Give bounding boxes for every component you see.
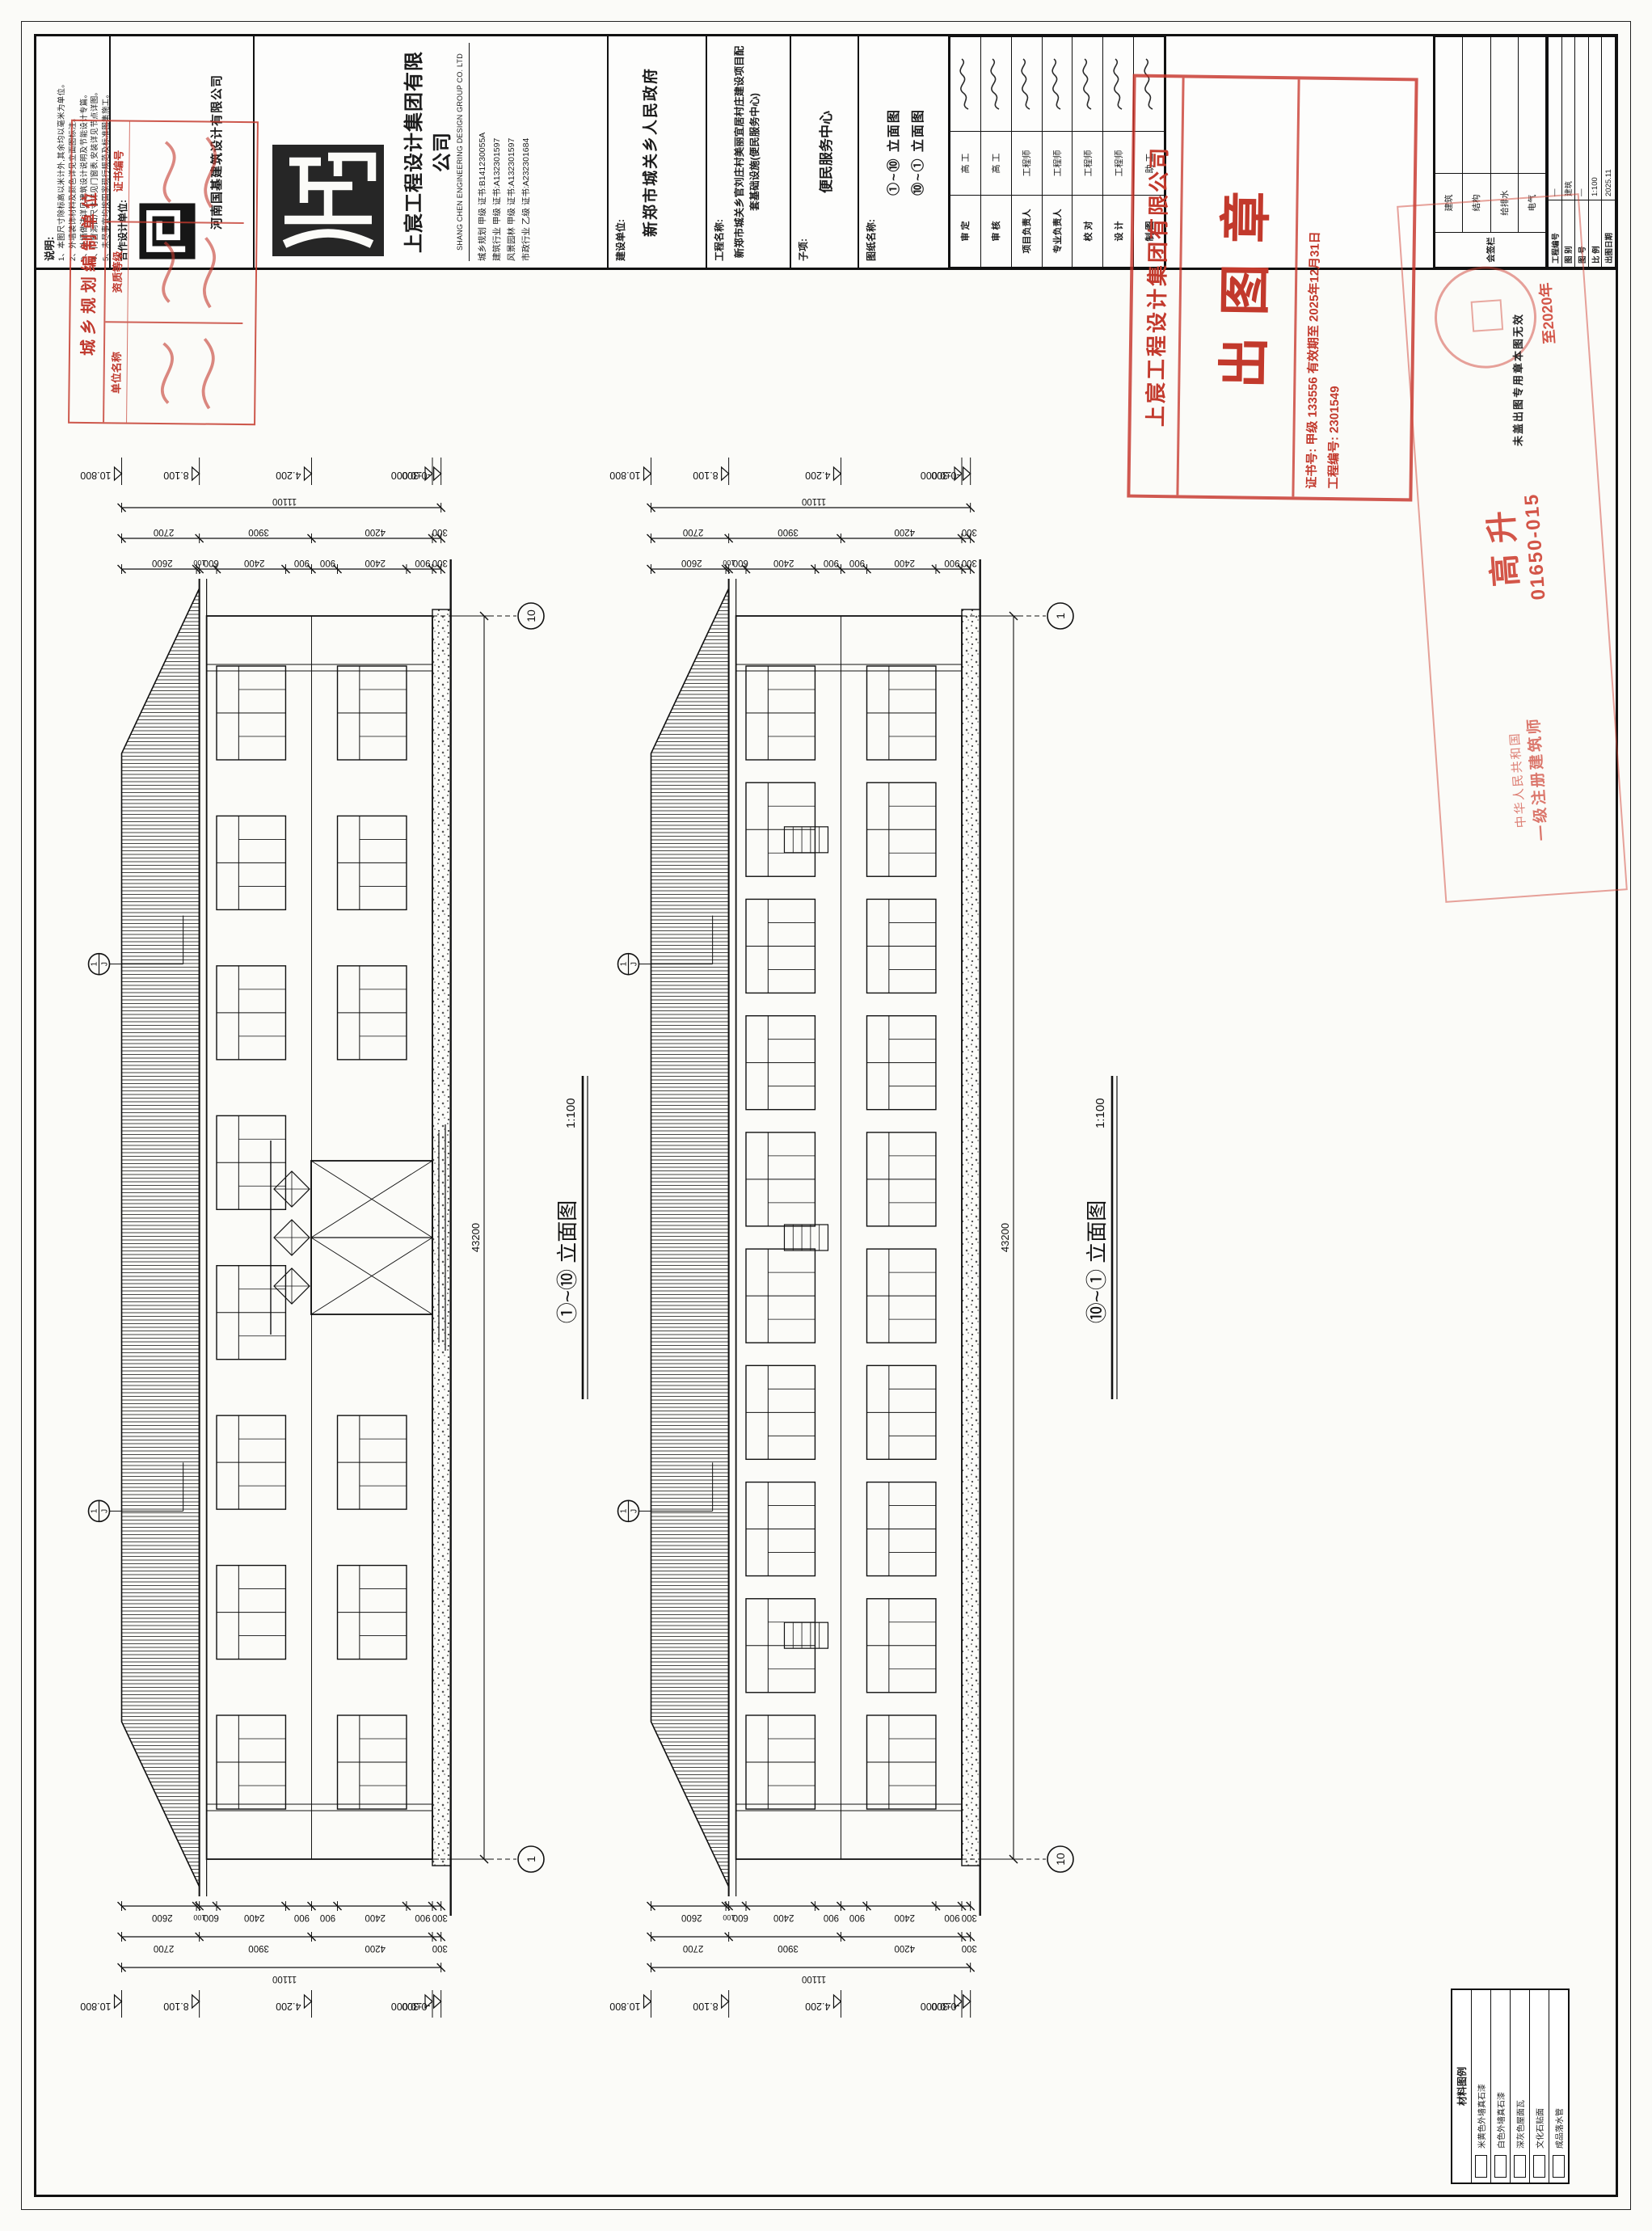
svg-text:300: 300 bbox=[432, 558, 448, 567]
legend-text: 米黄色外墙真石漆 bbox=[1475, 2084, 1487, 2149]
info-value: 建筑 bbox=[1561, 37, 1575, 200]
elevation-10: 2600100600240090090024009003002700390042… bbox=[609, 458, 1117, 2018]
release-stamp-company: 上宸工程设计集团有限公司 bbox=[1130, 78, 1184, 496]
legend-swatch bbox=[1533, 2155, 1545, 2178]
legend-text: 文化石贴面 bbox=[1533, 2108, 1545, 2149]
signature-role: 审 核 bbox=[980, 196, 1011, 268]
signature-person-title: 高 工 bbox=[980, 132, 1011, 196]
svg-text:11100: 11100 bbox=[802, 1974, 826, 1984]
svg-text:300: 300 bbox=[962, 527, 977, 537]
company-cell: 上宸工程设计集团有限公司 SHANG CHEN ENGINEERING DESI… bbox=[255, 36, 609, 268]
svg-text:900: 900 bbox=[944, 558, 959, 567]
svg-text:J: J bbox=[101, 1509, 110, 1513]
svg-text:1: 1 bbox=[1054, 613, 1067, 619]
legend-swatch bbox=[1553, 2155, 1565, 2178]
legend-swatch bbox=[1475, 2155, 1487, 2178]
elevation-1: 2600100600240090090024009003002700390042… bbox=[80, 458, 588, 2018]
svg-text:⑩~① 立面图: ⑩~① 立面图 bbox=[1085, 1200, 1109, 1323]
legend-rows: 米黄色外墙真石漆白色外墙真石漆深灰色屋面瓦文化石贴面成品落水管 bbox=[1472, 1990, 1568, 2182]
signature-person-title: 高 工 bbox=[950, 132, 981, 196]
svg-text:900: 900 bbox=[944, 1913, 959, 1922]
notes-title: 说明: bbox=[41, 43, 57, 261]
signature-handwriting bbox=[950, 37, 981, 132]
countersign-signature bbox=[1490, 37, 1518, 174]
svg-text:3900: 3900 bbox=[778, 1943, 799, 1953]
svg-text:4.200: 4.200 bbox=[276, 2001, 301, 2012]
svg-text:4.200: 4.200 bbox=[805, 2001, 830, 2012]
drawing-title-line-1: ①~⑩ 立面图 bbox=[883, 43, 902, 261]
svg-text:300: 300 bbox=[962, 1913, 977, 1922]
info-value: — bbox=[1549, 37, 1562, 200]
svg-text:2700: 2700 bbox=[683, 527, 704, 537]
svg-text:900: 900 bbox=[294, 1913, 310, 1922]
svg-text:4.200: 4.200 bbox=[805, 470, 830, 481]
cert-line-3: 风景园林 甲级 证书:A132301597 bbox=[505, 43, 520, 261]
svg-text:1:100: 1:100 bbox=[1094, 1098, 1107, 1128]
cert-line-1: 城乡规划 甲级 证书:B141230055A bbox=[476, 43, 491, 261]
legend-row: 文化石贴面 bbox=[1530, 1990, 1549, 2182]
planning-field-value bbox=[129, 122, 253, 222]
subproject-label: 子项: bbox=[796, 43, 810, 261]
svg-text:2400: 2400 bbox=[365, 558, 386, 567]
release-stamp-seal-text: 出图章 bbox=[1178, 78, 1300, 496]
signature-person-title: 工程师 bbox=[1011, 132, 1042, 196]
planning-unit-stamp: 城乡规划编制单位 单位名称资质等级证书编号 bbox=[68, 120, 259, 425]
svg-text:1: 1 bbox=[525, 1856, 537, 1862]
signature-handwriting bbox=[1042, 37, 1073, 132]
svg-text:900: 900 bbox=[320, 1913, 335, 1922]
svg-text:4200: 4200 bbox=[365, 1943, 386, 1953]
svg-text:3900: 3900 bbox=[778, 527, 799, 537]
release-seal-stamp: 上宸工程设计集团有限公司 出图章 证书号: 甲级 133556 有效期至 202… bbox=[1127, 74, 1418, 502]
signature-row: 设 计工程师 bbox=[1103, 37, 1134, 268]
cert-line-4: 市政行业 乙级 证书:A232301684 bbox=[520, 43, 534, 261]
svg-text:2400: 2400 bbox=[773, 558, 794, 567]
legend-row: 成品落水管 bbox=[1549, 1990, 1568, 2182]
svg-text:3900: 3900 bbox=[248, 527, 269, 537]
svg-text:11100: 11100 bbox=[802, 496, 826, 506]
signature-row: 校 对工程师 bbox=[1073, 37, 1103, 268]
legend-swatch bbox=[1494, 2155, 1507, 2178]
svg-text:300: 300 bbox=[962, 558, 977, 567]
svg-text:900: 900 bbox=[849, 1913, 865, 1922]
svg-text:10: 10 bbox=[1054, 1853, 1067, 1866]
svg-text:-0.300: -0.300 bbox=[402, 2001, 430, 2012]
svg-text:J: J bbox=[101, 962, 110, 966]
signature-person-title: 工程师 bbox=[1073, 132, 1103, 196]
signature-handwriting bbox=[980, 37, 1011, 132]
svg-text:-0.300: -0.300 bbox=[931, 2001, 959, 2012]
signature-person-title: 工程师 bbox=[1103, 132, 1134, 196]
info-value: 1:100 bbox=[1588, 37, 1602, 200]
release-proj-line: 工程编号: 2301549 bbox=[1323, 88, 1351, 489]
release-stamp-cert: 证书号: 甲级 133556 有效期至 2025年12月31日 工程编号: 23… bbox=[1294, 79, 1356, 497]
company-logo bbox=[268, 140, 389, 261]
legend-text: 深灰色屋面瓦 bbox=[1514, 2100, 1526, 2149]
svg-text:8.100: 8.100 bbox=[163, 470, 188, 481]
info-value: — bbox=[1575, 37, 1589, 200]
svg-text:600: 600 bbox=[733, 558, 748, 567]
svg-text:900: 900 bbox=[824, 558, 839, 567]
svg-text:2600: 2600 bbox=[152, 558, 173, 567]
signature-row: 审 定高 工 bbox=[950, 37, 981, 268]
signature-role: 专业负责人 bbox=[1042, 196, 1073, 268]
countersign-signature bbox=[1463, 37, 1490, 174]
planning-stamp-columns: 单位名称资质等级证书编号 bbox=[104, 121, 245, 424]
invalid-without-seal-note: 未盖出图专用章本图无效 bbox=[1510, 313, 1525, 446]
legend-text: 白色外墙真石漆 bbox=[1494, 2092, 1507, 2149]
svg-text:10.800: 10.800 bbox=[609, 470, 640, 481]
info-label: 比 例 bbox=[1588, 200, 1602, 268]
svg-text:3900: 3900 bbox=[248, 1943, 269, 1953]
signature-role: 项目负责人 bbox=[1011, 196, 1042, 268]
svg-text:2600: 2600 bbox=[152, 1913, 173, 1922]
svg-text:1: 1 bbox=[620, 1508, 629, 1513]
svg-text:4200: 4200 bbox=[894, 527, 915, 537]
owner-label: 建设单位: bbox=[613, 43, 627, 261]
legend-swatch bbox=[1514, 2155, 1526, 2178]
svg-text:10: 10 bbox=[525, 609, 537, 622]
svg-text:2700: 2700 bbox=[154, 527, 175, 537]
svg-text:2400: 2400 bbox=[244, 1913, 265, 1922]
svg-text:10.800: 10.800 bbox=[80, 2001, 111, 2012]
svg-text:11100: 11100 bbox=[272, 496, 297, 506]
drawing-title-cell: 图纸名称: ①~⑩ 立面图 ⑩~① 立面图 bbox=[859, 36, 950, 268]
svg-text:J: J bbox=[630, 962, 639, 966]
planning-stamp-field: 证书编号 bbox=[107, 121, 245, 221]
svg-text:2600: 2600 bbox=[681, 1913, 702, 1922]
svg-text:900: 900 bbox=[294, 558, 310, 567]
owner-cell: 建设单位: 新郑市城关乡人民政府 bbox=[609, 36, 707, 268]
planning-stamp-header: 城乡规划编制单位 bbox=[70, 121, 107, 422]
owner-value: 新郑市城关乡人民政府 bbox=[638, 43, 660, 261]
scanned-drawing-page: 2600100600240090090024009003002700390042… bbox=[0, 0, 1652, 2231]
signature-role: 设 计 bbox=[1103, 196, 1134, 268]
svg-text:10.800: 10.800 bbox=[80, 470, 111, 481]
planning-field-label: 证书编号 bbox=[107, 121, 130, 221]
svg-text:2400: 2400 bbox=[894, 558, 915, 567]
svg-text:10.800: 10.800 bbox=[609, 2001, 640, 2012]
svg-text:J: J bbox=[630, 1509, 639, 1513]
svg-text:4.200: 4.200 bbox=[276, 470, 301, 481]
legend-row: 白色外墙真石漆 bbox=[1491, 1990, 1511, 2182]
planning-field-label: 资质等级 bbox=[105, 222, 129, 322]
signature-row: 项目负责人工程师 bbox=[1011, 37, 1042, 268]
drawing-title-label: 图纸名称: bbox=[864, 43, 878, 261]
material-legend: 材料图例 米黄色外墙真石漆白色外墙真石漆深灰色屋面瓦文化石贴面成品落水管 bbox=[1451, 1988, 1570, 2184]
svg-text:1: 1 bbox=[91, 961, 99, 966]
svg-text:1: 1 bbox=[91, 1508, 99, 1513]
svg-text:1:100: 1:100 bbox=[564, 1098, 578, 1128]
subproject-value: 便民服务中心 bbox=[816, 43, 837, 261]
signature-row: 专业负责人工程师 bbox=[1042, 37, 1073, 268]
company-name-cn: 上宸工程设计集团有限公司 bbox=[398, 43, 454, 261]
countersign-signature bbox=[1518, 37, 1545, 174]
svg-text:300: 300 bbox=[432, 527, 448, 537]
svg-text:-0.300: -0.300 bbox=[931, 470, 959, 481]
svg-text:2400: 2400 bbox=[894, 1913, 915, 1922]
countersign-signature bbox=[1435, 37, 1463, 174]
svg-text:43200: 43200 bbox=[999, 1223, 1011, 1252]
project-cell: 工程名称: 新郑市城关乡官刘庄村美丽宜居村庄建设项目配套基础设施(便民服务中心) bbox=[707, 36, 791, 268]
svg-text:-0.300: -0.300 bbox=[402, 470, 430, 481]
svg-text:2400: 2400 bbox=[773, 1913, 794, 1922]
legend-row: 深灰色屋面瓦 bbox=[1511, 1990, 1530, 2182]
signature-person-title: 工程师 bbox=[1042, 132, 1073, 196]
svg-text:43200: 43200 bbox=[470, 1223, 482, 1252]
svg-text:300: 300 bbox=[432, 1913, 448, 1922]
planning-field-label: 单位名称 bbox=[104, 323, 128, 423]
legend-text: 成品落水管 bbox=[1553, 2108, 1565, 2149]
info-row: 出图日期2025.11 bbox=[1602, 37, 1616, 268]
planning-field-value bbox=[127, 323, 251, 424]
svg-text:300: 300 bbox=[432, 1943, 448, 1953]
svg-text:8.100: 8.100 bbox=[163, 2001, 188, 2012]
signature-handwriting bbox=[1103, 37, 1134, 132]
info-row: 比 例1:100 bbox=[1588, 37, 1602, 268]
project-label: 工程名称: bbox=[712, 43, 726, 261]
svg-text:4200: 4200 bbox=[365, 527, 386, 537]
company-cert-list: 城乡规划 甲级 证书:B141230055A建筑行业 甲级 证书:A132301… bbox=[476, 43, 533, 261]
svg-text:①~⑩ 立面图: ①~⑩ 立面图 bbox=[555, 1200, 579, 1323]
svg-text:2700: 2700 bbox=[154, 1943, 175, 1953]
svg-text:2400: 2400 bbox=[365, 1913, 386, 1922]
planning-field-value bbox=[128, 222, 251, 323]
svg-text:8.100: 8.100 bbox=[693, 470, 718, 481]
svg-text:600: 600 bbox=[204, 558, 219, 567]
signature-handwriting bbox=[1073, 37, 1103, 132]
svg-text:8.100: 8.100 bbox=[693, 2001, 718, 2012]
svg-text:300: 300 bbox=[962, 1943, 977, 1953]
svg-text:1: 1 bbox=[620, 961, 629, 966]
svg-text:11100: 11100 bbox=[272, 1974, 297, 1984]
info-value: 2025.11 bbox=[1602, 37, 1616, 200]
signature-row: 审 核高 工 bbox=[980, 37, 1011, 268]
cert-line-2: 建筑行业 甲级 证书:A132301597 bbox=[491, 43, 505, 261]
planning-stamp-field: 单位名称 bbox=[104, 322, 242, 424]
svg-text:900: 900 bbox=[415, 558, 430, 567]
note-line-1: 1、本图尺寸除标高以米计外,其余均以毫米为单位。 bbox=[57, 43, 68, 261]
legend-title: 材料图例 bbox=[1452, 1990, 1472, 2182]
signature-handwriting bbox=[1011, 37, 1042, 132]
drawing-sheet: 2600100600240090090024009003002700390042… bbox=[0, 0, 1652, 2231]
svg-text:2400: 2400 bbox=[244, 558, 265, 567]
subproject-cell: 子项: 便民服务中心 bbox=[791, 36, 859, 268]
svg-text:2600: 2600 bbox=[681, 558, 702, 567]
svg-text:2700: 2700 bbox=[683, 1943, 704, 1953]
svg-text:900: 900 bbox=[320, 558, 335, 567]
svg-text:900: 900 bbox=[824, 1913, 839, 1922]
svg-text:600: 600 bbox=[204, 1913, 219, 1922]
svg-text:600: 600 bbox=[733, 1913, 748, 1922]
info-label: 出图日期 bbox=[1602, 200, 1616, 268]
legend-row: 米黄色外墙真石漆 bbox=[1472, 1990, 1491, 2182]
svg-text:900: 900 bbox=[415, 1913, 430, 1922]
svg-text:900: 900 bbox=[849, 558, 865, 567]
planning-stamp-field: 资质等级 bbox=[105, 221, 243, 323]
company-name-en: SHANG CHEN ENGINEERING DESIGN GROUP CO. … bbox=[456, 43, 470, 261]
svg-text:4200: 4200 bbox=[894, 1943, 915, 1953]
drawing-title-line-2: ⑩~① 立面图 bbox=[907, 43, 926, 261]
signature-role: 审 定 bbox=[950, 196, 981, 268]
signature-role: 校 对 bbox=[1073, 196, 1103, 268]
project-value: 新郑市城关乡官刘庄村美丽宜居村庄建设项目配套基础设施(便民服务中心) bbox=[732, 43, 763, 261]
